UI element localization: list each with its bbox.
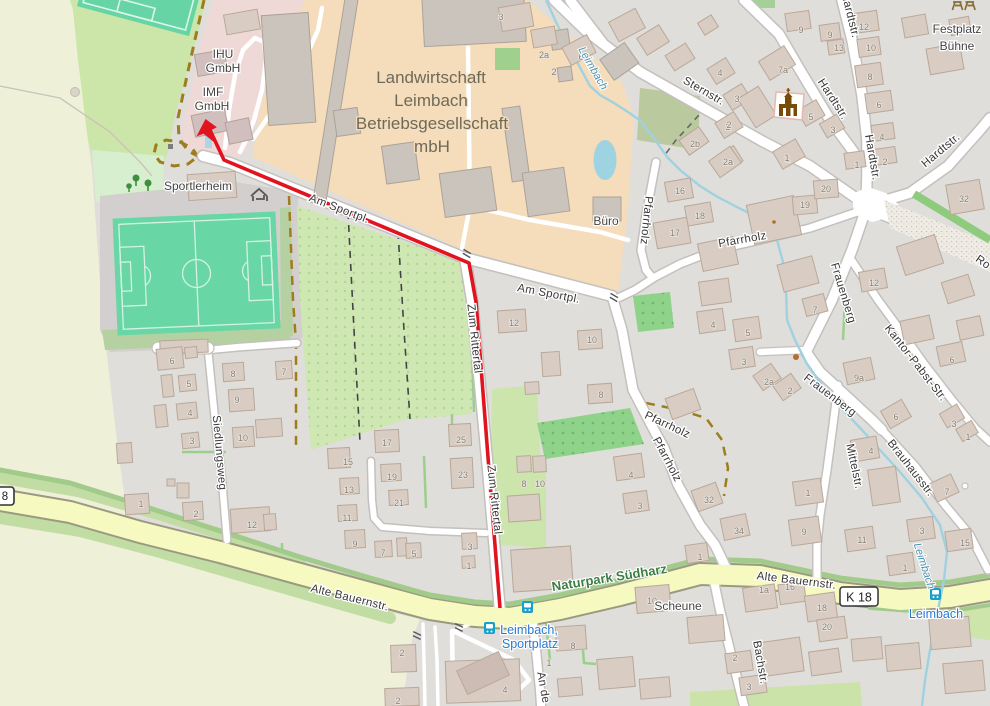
svg-text:Sportplatz: Sportplatz	[502, 637, 558, 651]
svg-text:5: 5	[745, 328, 750, 338]
svg-text:15: 15	[960, 538, 970, 548]
svg-text:9: 9	[801, 527, 806, 537]
svg-text:23: 23	[458, 470, 468, 480]
svg-text:IHU: IHU	[213, 47, 234, 61]
svg-text:20: 20	[821, 184, 831, 194]
svg-text:3: 3	[637, 501, 642, 511]
svg-text:1: 1	[138, 499, 143, 509]
svg-text:9: 9	[234, 395, 239, 405]
svg-text:1: 1	[902, 563, 907, 573]
svg-text:Büro: Büro	[593, 214, 619, 228]
svg-text:4: 4	[628, 470, 633, 480]
svg-text:1: 1	[784, 153, 789, 163]
svg-text:Sportlerheim: Sportlerheim	[164, 179, 232, 193]
svg-text:2: 2	[551, 67, 556, 77]
svg-text:4: 4	[717, 68, 722, 78]
svg-text:Leimbach,: Leimbach,	[500, 623, 558, 637]
svg-text:12: 12	[247, 520, 257, 530]
svg-text:Scheune: Scheune	[654, 599, 702, 613]
svg-text:13: 13	[344, 485, 354, 495]
svg-text:34: 34	[734, 526, 744, 536]
svg-text:1: 1	[697, 552, 702, 562]
svg-text:1: 1	[965, 432, 970, 442]
svg-text:Festplatz: Festplatz	[933, 22, 982, 36]
svg-text:5: 5	[186, 379, 191, 389]
svg-text:1: 1	[854, 160, 859, 170]
svg-text:3: 3	[734, 94, 739, 104]
svg-text:IMF: IMF	[203, 85, 224, 99]
svg-text:2b: 2b	[690, 139, 700, 149]
svg-text:15: 15	[343, 457, 353, 467]
svg-text:16: 16	[675, 186, 685, 196]
svg-text:7: 7	[380, 548, 385, 558]
svg-text:2: 2	[399, 648, 404, 658]
svg-text:10: 10	[535, 479, 545, 489]
svg-text:10: 10	[866, 43, 876, 53]
svg-text:11: 11	[342, 513, 351, 523]
svg-text:Bühne: Bühne	[940, 39, 975, 53]
svg-text:3: 3	[746, 682, 751, 692]
svg-text:5: 5	[411, 549, 416, 559]
svg-text:9: 9	[827, 30, 832, 40]
svg-text:6: 6	[893, 412, 898, 422]
svg-text:6: 6	[876, 100, 881, 110]
svg-text:32: 32	[959, 194, 969, 204]
svg-text:7a: 7a	[778, 65, 788, 75]
svg-text:1a: 1a	[759, 585, 769, 595]
svg-text:13: 13	[834, 43, 844, 53]
svg-text:3: 3	[189, 436, 194, 446]
svg-text:3: 3	[919, 526, 924, 536]
svg-text:18: 18	[817, 603, 827, 613]
svg-text:17: 17	[670, 228, 680, 238]
svg-text:mbH: mbH	[414, 137, 450, 156]
svg-text:8: 8	[2, 491, 8, 503]
svg-text:4: 4	[710, 320, 715, 330]
svg-text:Leimbach: Leimbach	[909, 607, 963, 621]
svg-text:7: 7	[281, 367, 286, 377]
svg-text:3: 3	[830, 125, 835, 135]
svg-text:2: 2	[732, 653, 737, 663]
svg-text:8: 8	[867, 72, 872, 82]
svg-text:2: 2	[395, 696, 400, 706]
svg-text:1: 1	[805, 488, 810, 498]
svg-text:3: 3	[498, 12, 503, 22]
svg-text:9: 9	[798, 25, 803, 35]
svg-text:7: 7	[812, 305, 817, 315]
svg-text:K 18: K 18	[846, 591, 872, 605]
svg-text:2a: 2a	[764, 377, 774, 387]
svg-text:2a: 2a	[539, 50, 549, 60]
svg-text:8: 8	[230, 369, 235, 379]
svg-text:10: 10	[587, 335, 597, 345]
svg-text:6: 6	[949, 355, 954, 365]
svg-text:17: 17	[382, 438, 392, 448]
svg-text:4: 4	[502, 685, 507, 695]
svg-text:8: 8	[570, 641, 575, 651]
svg-text:2a: 2a	[723, 157, 733, 167]
svg-text:3: 3	[741, 357, 746, 367]
svg-text:4: 4	[868, 446, 873, 456]
svg-text:7: 7	[944, 487, 949, 497]
svg-text:9a: 9a	[854, 373, 864, 383]
svg-text:20: 20	[822, 622, 832, 632]
svg-text:32: 32	[704, 495, 714, 505]
svg-text:2: 2	[882, 157, 887, 167]
svg-text:6: 6	[169, 356, 174, 366]
svg-text:12: 12	[869, 278, 879, 288]
svg-text:Betriebsgesellschaft: Betriebsgesellschaft	[356, 114, 508, 133]
svg-text:1: 1	[546, 658, 551, 668]
svg-text:19: 19	[387, 472, 397, 482]
svg-text:5: 5	[808, 112, 813, 122]
svg-text:8: 8	[521, 479, 526, 489]
svg-text:GmbH: GmbH	[195, 99, 230, 113]
svg-text:10: 10	[238, 433, 248, 443]
svg-text:GmbH: GmbH	[206, 61, 241, 75]
svg-text:2: 2	[787, 386, 792, 396]
svg-text:3: 3	[951, 419, 956, 429]
svg-text:11: 11	[857, 535, 866, 545]
svg-text:9: 9	[352, 539, 357, 549]
svg-text:12: 12	[509, 318, 519, 328]
svg-text:2: 2	[726, 120, 731, 130]
svg-text:Landwirtschaft: Landwirtschaft	[376, 68, 486, 87]
svg-text:3: 3	[467, 542, 472, 552]
svg-text:21: 21	[394, 498, 404, 508]
svg-text:8: 8	[598, 390, 603, 400]
svg-text:1: 1	[466, 561, 471, 571]
svg-text:4: 4	[187, 408, 192, 418]
svg-text:4: 4	[879, 132, 884, 142]
svg-text:19: 19	[800, 200, 810, 210]
svg-text:25: 25	[456, 435, 466, 445]
svg-text:18: 18	[695, 211, 705, 221]
svg-text:Leimbach: Leimbach	[394, 91, 468, 110]
svg-text:2: 2	[193, 509, 198, 519]
